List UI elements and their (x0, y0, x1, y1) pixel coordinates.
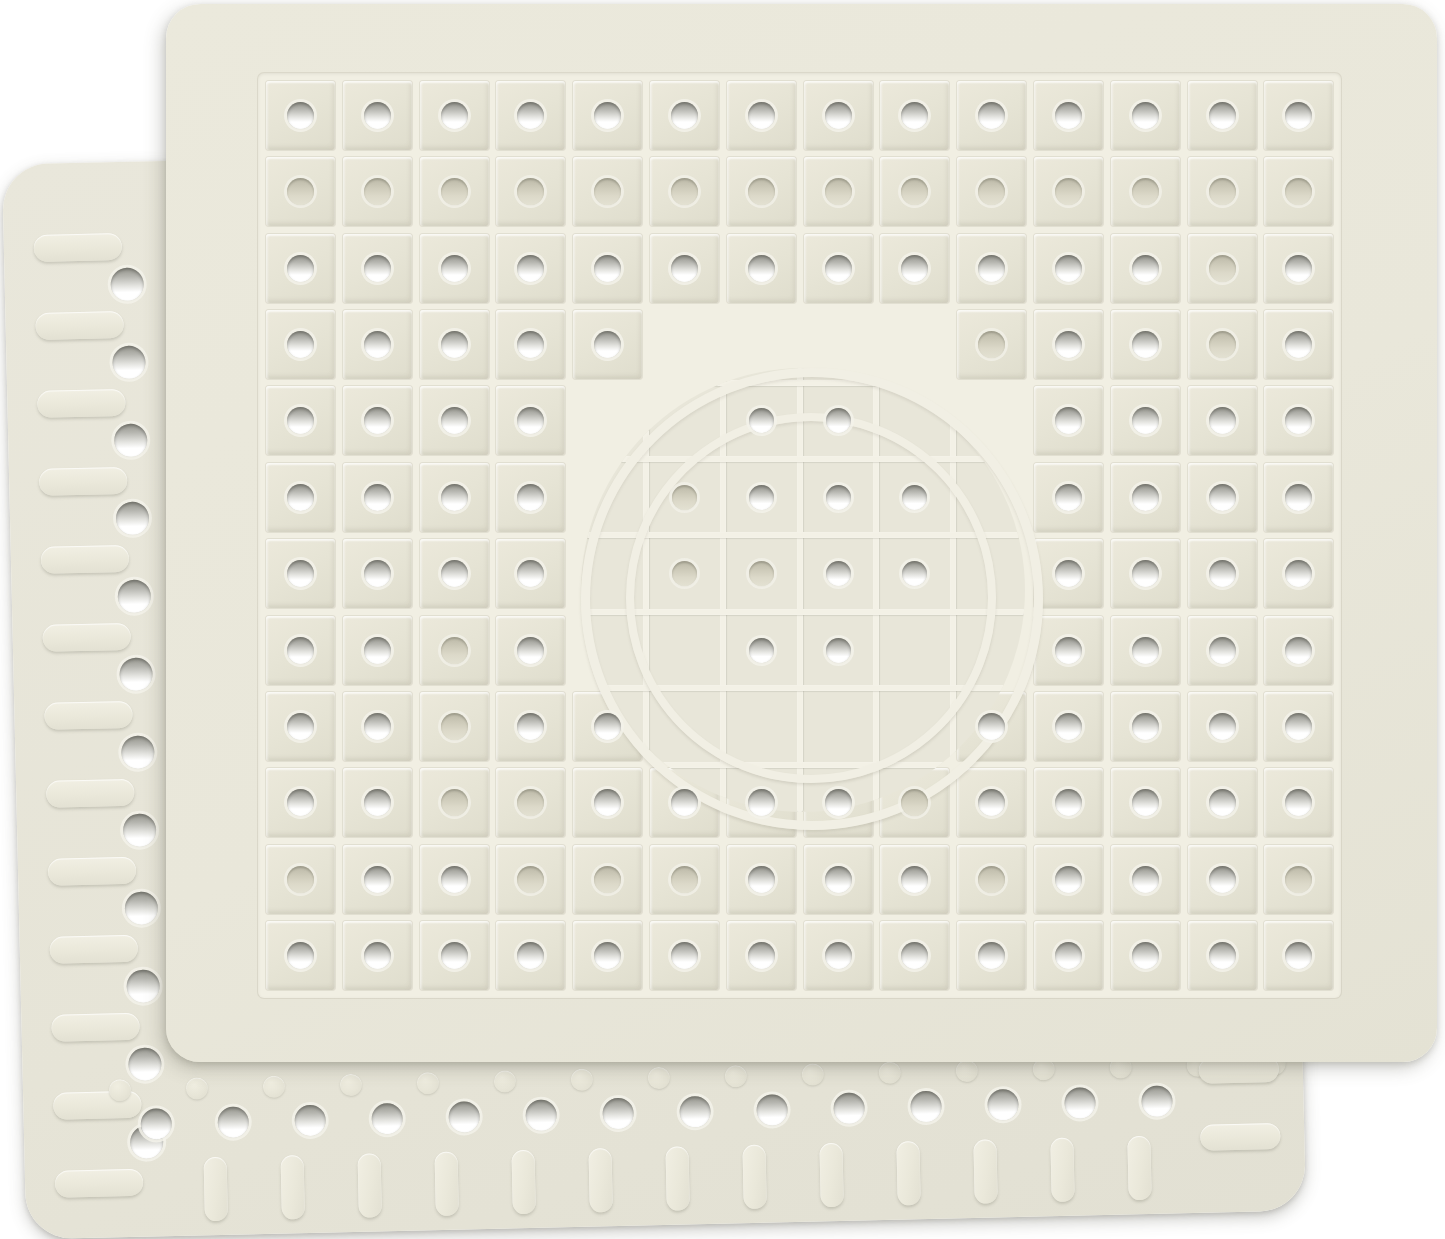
tile-drain-hole (517, 637, 544, 664)
drain-hole (448, 1101, 480, 1133)
suction-slot (55, 1168, 144, 1197)
product-photo (0, 0, 1445, 1239)
tile-drain-hole (594, 178, 621, 205)
tile-drain-hole (594, 866, 621, 893)
tile-drain-hole (901, 102, 928, 129)
tile-drain-hole (1055, 484, 1082, 511)
tile-drain-hole (1209, 484, 1236, 511)
tile-drain-hole (671, 866, 698, 893)
tile-drain-hole (441, 255, 468, 282)
tile-drain-hole (748, 255, 775, 282)
grip-bump (340, 1074, 362, 1096)
tile-drain-hole (978, 942, 1005, 969)
grip-bump (648, 1067, 670, 1089)
tile-drain-hole (1132, 713, 1159, 740)
suction-slot (357, 1153, 381, 1218)
tile-drain-hole (1285, 102, 1312, 129)
tile-drain-hole (1132, 331, 1159, 358)
tile-drain-hole (1209, 178, 1236, 205)
drain-hole (910, 1090, 942, 1122)
tile-drain-hole (517, 102, 544, 129)
tile-drain-hole (826, 561, 851, 586)
tile-drain-hole (364, 484, 391, 511)
drain-hole (987, 1088, 1019, 1120)
tile-drain-hole (287, 178, 314, 205)
tile-drain-hole (1209, 102, 1236, 129)
drain-hole (128, 1047, 162, 1081)
drain-hole (371, 1102, 403, 1134)
tile-drain-hole (441, 942, 468, 969)
tile-drain-hole (1055, 637, 1082, 664)
tile-drain-hole (287, 331, 314, 358)
tile-drain-hole (364, 331, 391, 358)
suction-slot (42, 622, 131, 651)
suction-slot (49, 934, 138, 963)
suction-slot (742, 1145, 766, 1210)
suction-slot (280, 1155, 304, 1220)
drain-hole (602, 1097, 634, 1129)
tile-drain-hole (364, 866, 391, 893)
tile-drain-hole (671, 789, 698, 816)
grip-bump (879, 1062, 901, 1084)
tile-drain-hole (517, 866, 544, 893)
drain-hole (217, 1106, 249, 1138)
tile-drain-hole (749, 561, 774, 586)
suction-slot (39, 466, 128, 495)
tile-drain-hole (1055, 178, 1082, 205)
tile-drain-hole (1285, 331, 1312, 358)
drain-hole (119, 657, 153, 691)
tile-drain-hole (364, 560, 391, 587)
tile-drain-hole (441, 178, 468, 205)
tile-drain-hole (1132, 484, 1159, 511)
tile-drain-hole (978, 255, 1005, 282)
suction-slot (588, 1148, 612, 1213)
suction-slot (44, 700, 133, 729)
tile-drain-hole (1132, 102, 1159, 129)
tile-drain-hole (1285, 866, 1312, 893)
tile-drain-hole (826, 408, 851, 433)
tile-drain-hole (441, 789, 468, 816)
front-sink-mat (166, 4, 1437, 1062)
emblem-inner-ring (626, 413, 996, 783)
tile-drain-hole (1209, 789, 1236, 816)
tile-drain-hole (594, 102, 621, 129)
suction-slot (819, 1143, 843, 1208)
tile-drain-hole (978, 102, 1005, 129)
tile-drain-hole (671, 178, 698, 205)
tile-drain-hole (1132, 942, 1159, 969)
tile-drain-hole (1209, 942, 1236, 969)
tile-drain-hole (364, 255, 391, 282)
suction-slot (1127, 1136, 1151, 1201)
suction-slot (1200, 1123, 1281, 1151)
tile-drain-hole (287, 866, 314, 893)
tile-drain-hole (902, 485, 927, 510)
tile-drain-hole (1055, 789, 1082, 816)
tile-drain-hole (364, 407, 391, 434)
suction-slot (665, 1146, 689, 1211)
tile-drain-hole (594, 331, 621, 358)
tile-drain-hole (901, 255, 928, 282)
tile-drain-hole (826, 485, 851, 510)
tile-drain-hole (594, 713, 621, 740)
tile-drain-hole (441, 407, 468, 434)
tile-drain-hole (1055, 407, 1082, 434)
tile-drain-hole (978, 178, 1005, 205)
tile-drain-hole (1055, 255, 1082, 282)
tile-drain-hole (441, 560, 468, 587)
tile-drain-hole (748, 789, 775, 816)
tile-drain-hole (1285, 255, 1312, 282)
tile-drain-hole (1055, 942, 1082, 969)
tile-drain-hole (825, 789, 852, 816)
tile-drain-hole (978, 866, 1005, 893)
tile-drain-hole (1285, 637, 1312, 664)
tile-drain-hole (1209, 331, 1236, 358)
tile-drain-hole (1055, 713, 1082, 740)
tile-drain-hole (287, 942, 314, 969)
tile-drain-hole (441, 713, 468, 740)
tile-drain-hole (748, 942, 775, 969)
tile-drain-hole (1055, 102, 1082, 129)
suction-slot (41, 544, 130, 573)
tile-drain-hole (1132, 637, 1159, 664)
tile-drain-hole (1132, 866, 1159, 893)
suction-slot (34, 232, 123, 261)
suction-slot (896, 1141, 920, 1206)
tile-drain-hole (671, 102, 698, 129)
drain-hole (294, 1104, 326, 1136)
tile-drain-hole (364, 637, 391, 664)
tile-drain-hole (364, 102, 391, 129)
drain-hole (756, 1094, 788, 1126)
tile-drain-hole (441, 102, 468, 129)
grip-bump (186, 1077, 208, 1099)
tile-drain-hole (1055, 560, 1082, 587)
drain-hole (679, 1095, 711, 1127)
tile-drain-hole (749, 638, 774, 663)
tile-drain-hole (671, 255, 698, 282)
tile-drain-hole (1209, 637, 1236, 664)
tile-drain-hole (287, 484, 314, 511)
suction-slot (434, 1152, 458, 1217)
tile-drain-hole (672, 561, 697, 586)
grip-bump (956, 1060, 978, 1082)
tile-drain-hole (978, 331, 1005, 358)
tile-drain-hole (287, 102, 314, 129)
tile-drain-hole (517, 331, 544, 358)
tile-drain-hole (287, 255, 314, 282)
drain-hole (122, 813, 156, 847)
tile-drain-hole (748, 178, 775, 205)
tile-drain-hole (441, 637, 468, 664)
tile-drain-hole (748, 866, 775, 893)
suction-slot (35, 310, 124, 339)
tile-drain-hole (364, 789, 391, 816)
tile-drain-hole (441, 331, 468, 358)
drain-hole (124, 891, 158, 925)
tile-drain-hole (1209, 713, 1236, 740)
tile-drain-hole (749, 408, 774, 433)
suction-slot (37, 388, 126, 417)
tile-drain-hole (287, 637, 314, 664)
tile-drain-hole (825, 178, 852, 205)
tile-drain-hole (517, 255, 544, 282)
tile-drain-hole (1132, 789, 1159, 816)
suction-slot (511, 1150, 535, 1215)
grip-bump (263, 1075, 285, 1097)
drain-hole (1064, 1087, 1096, 1119)
tile-drain-hole (748, 102, 775, 129)
tile-drain-hole (364, 713, 391, 740)
tile-drain-hole (825, 866, 852, 893)
tile-drain-hole (1132, 407, 1159, 434)
grip-bump (417, 1072, 439, 1094)
drain-hole (126, 969, 160, 1003)
drain-hole (113, 423, 147, 457)
tile-drain-hole (517, 713, 544, 740)
tile-drain-hole (517, 484, 544, 511)
drain-hole (833, 1092, 865, 1124)
suction-slot (48, 856, 137, 885)
drain-hole (120, 735, 154, 769)
tile-drain-hole (1209, 407, 1236, 434)
drain-hole (115, 501, 149, 535)
drain-hole (117, 579, 151, 613)
tile-drain-hole (594, 942, 621, 969)
drain-hole (525, 1099, 557, 1131)
tile-drain-hole (1055, 331, 1082, 358)
grip-bump (571, 1068, 593, 1090)
tile-drain-hole (1132, 178, 1159, 205)
tile-drain-hole (901, 866, 928, 893)
drain-hole (112, 345, 146, 379)
tile-drain-hole (287, 407, 314, 434)
tile-drain-hole (287, 560, 314, 587)
tile-drain-hole (1209, 255, 1236, 282)
tile-drain-hole (978, 713, 1005, 740)
grip-bump (802, 1063, 824, 1085)
tile-drain-hole (1209, 866, 1236, 893)
grip-bump (494, 1070, 516, 1092)
tile-drain-hole (287, 713, 314, 740)
tile-drain-hole (672, 485, 697, 510)
tile-drain-hole (671, 942, 698, 969)
drain-hole (1141, 1085, 1173, 1117)
suction-slot (1050, 1138, 1074, 1203)
tile-drain-hole (364, 178, 391, 205)
tile-drain-hole (749, 485, 774, 510)
grip-bump (725, 1065, 747, 1087)
tile-drain-hole (1285, 484, 1312, 511)
tile-drain-hole (1132, 255, 1159, 282)
tile-drain-hole (825, 255, 852, 282)
drain-hole (110, 267, 144, 301)
suction-slot (973, 1139, 997, 1204)
tile-drain-hole (825, 942, 852, 969)
tile-drain-hole (1209, 560, 1236, 587)
tile-drain-hole (594, 255, 621, 282)
tile-drain-hole (826, 638, 851, 663)
drain-hole (140, 1108, 172, 1140)
suction-slot (46, 778, 135, 807)
tile-drain-hole (825, 102, 852, 129)
tile-drain-hole (364, 942, 391, 969)
tile-drain-hole (1285, 713, 1312, 740)
tile-drain-hole (287, 789, 314, 816)
tile-drain-hole (441, 484, 468, 511)
tile-drain-hole (441, 866, 468, 893)
tile-drain-hole (1132, 560, 1159, 587)
suction-slot (51, 1012, 140, 1041)
suction-slot (203, 1157, 227, 1222)
tile-drain-hole (1055, 866, 1082, 893)
